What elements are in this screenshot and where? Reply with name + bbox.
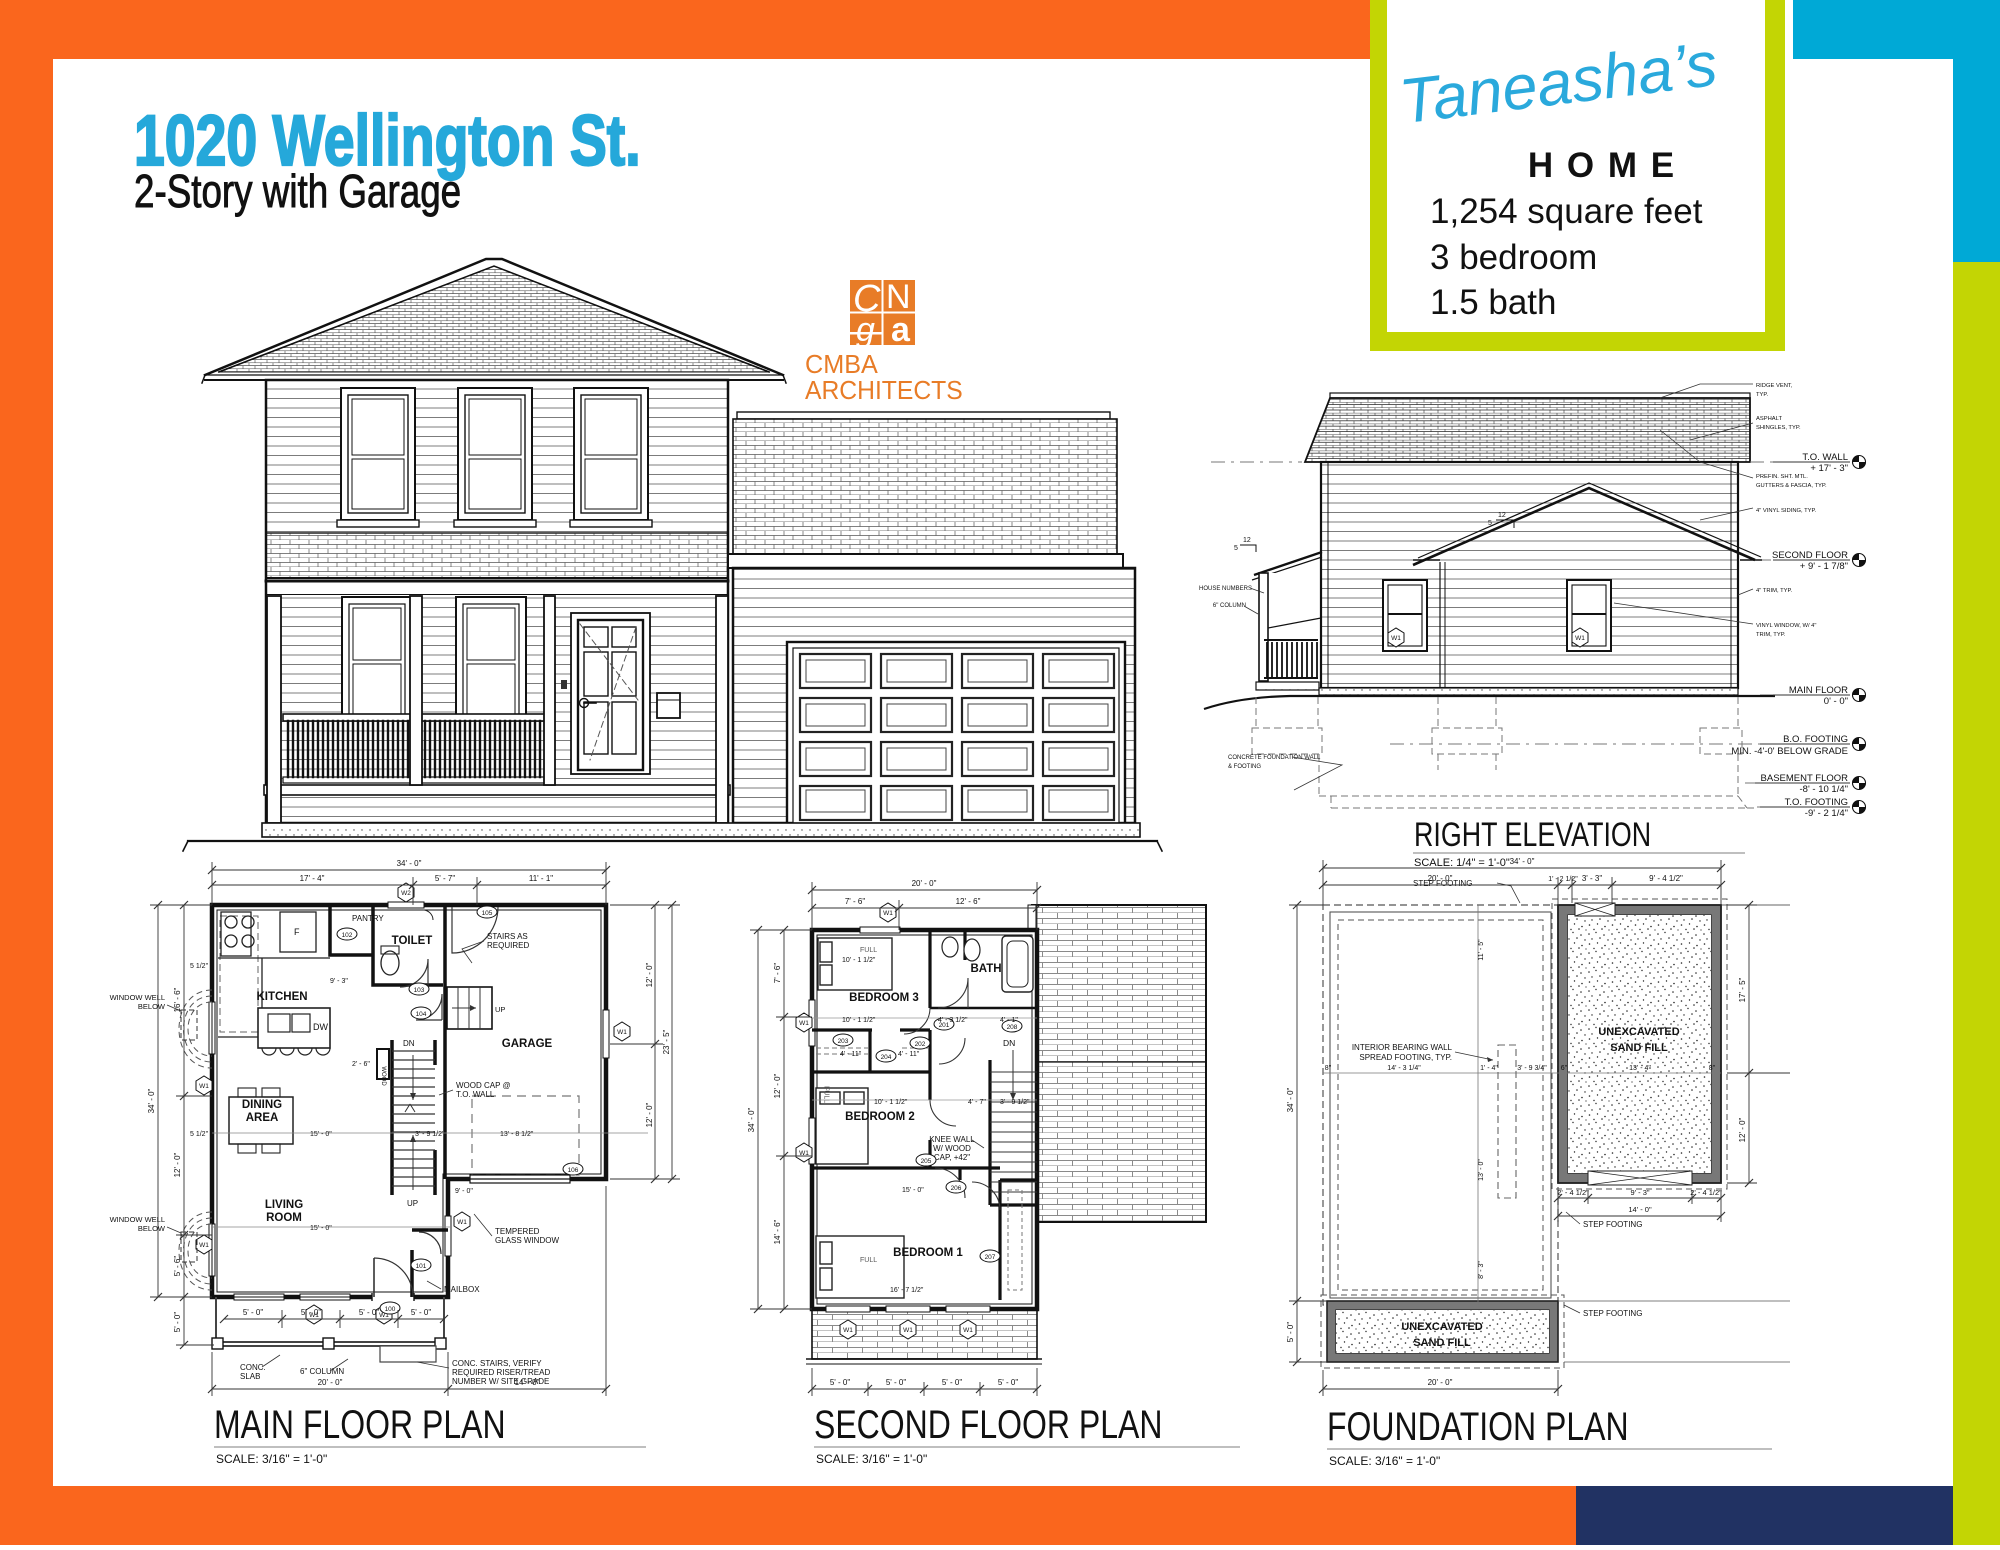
svg-text:SAND FILL: SAND FILL — [1610, 1042, 1668, 1054]
svg-text:5: 5 — [1488, 520, 1492, 527]
svg-text:23' - 5": 23' - 5" — [662, 1029, 671, 1054]
svg-text:BELOW: BELOW — [138, 1002, 166, 1011]
svg-text:W/ WOOD: W/ WOOD — [933, 1144, 971, 1153]
svg-text:TEMPERED: TEMPERED — [495, 1227, 540, 1236]
svg-text:34' - 0": 34' - 0" — [147, 1088, 156, 1113]
svg-text:1,254 square feet: 1,254 square feet — [1430, 192, 1703, 231]
svg-text:5' - 0": 5' - 0" — [1286, 1322, 1295, 1343]
svg-text:SLAB: SLAB — [240, 1372, 260, 1381]
svg-text:10' - 1 1/2": 10' - 1 1/2" — [842, 1017, 876, 1024]
svg-text:CMBA: CMBA — [805, 351, 879, 379]
svg-text:106: 106 — [568, 1167, 579, 1174]
svg-text:6" COLUMN: 6" COLUMN — [1213, 603, 1246, 609]
svg-text:20' - 0": 20' - 0" — [1428, 1378, 1453, 1387]
svg-text:101: 101 — [416, 1263, 427, 1270]
svg-text:207: 207 — [985, 1254, 996, 1261]
svg-text:2' - 4 1/2": 2' - 4 1/2" — [1557, 1188, 1589, 1197]
svg-text:12' - 0": 12' - 0" — [645, 1102, 654, 1127]
svg-text:FULL: FULL — [860, 947, 877, 954]
svg-text:W1: W1 — [199, 1242, 209, 1249]
svg-text:1.5 bath: 1.5 bath — [1430, 283, 1557, 322]
svg-text:13' - 8 1/2": 13' - 8 1/2" — [500, 1131, 534, 1138]
svg-text:8' - 3": 8' - 3" — [1478, 1261, 1485, 1279]
svg-text:FULL: FULL — [823, 1086, 830, 1103]
svg-text:13' - 4": 13' - 4" — [1629, 1065, 1651, 1072]
svg-text:8": 8" — [1325, 1065, 1332, 1072]
svg-text:1' - 2 1/2": 1' - 2 1/2" — [1548, 876, 1578, 883]
svg-text:2' - 6": 2' - 6" — [352, 1061, 370, 1068]
svg-text:WOOD: WOOD — [380, 1066, 386, 1086]
svg-text:RIDGE VENT,: RIDGE VENT, — [1756, 383, 1793, 389]
svg-text:3' - 9 3/4": 3' - 9 3/4" — [1517, 1065, 1547, 1072]
svg-text:105: 105 — [482, 910, 493, 917]
svg-text:5' - 7": 5' - 7" — [435, 874, 456, 883]
svg-text:UP: UP — [407, 1199, 418, 1208]
svg-text:g: g — [856, 311, 875, 349]
svg-text:MAIN FLOOR: MAIN FLOOR — [1789, 685, 1848, 696]
svg-text:5 1/2": 5 1/2" — [190, 1131, 209, 1138]
svg-text:20' - 0": 20' - 0" — [912, 879, 937, 888]
svg-text:DINING: DINING — [242, 1099, 282, 1111]
svg-text:W1: W1 — [843, 1327, 853, 1334]
svg-text:BELOW: BELOW — [138, 1224, 166, 1233]
svg-text:CONC. STAIRS, VERIFY: CONC. STAIRS, VERIFY — [452, 1359, 542, 1368]
svg-text:3' - 9 1/2": 3' - 9 1/2" — [1000, 1099, 1030, 1106]
svg-text:102: 102 — [342, 932, 353, 939]
svg-text:0' - 0": 0' - 0" — [1824, 696, 1848, 707]
svg-text:9' - 4 1/2": 9' - 4 1/2" — [1649, 874, 1683, 883]
svg-text:FOUNDATION PLAN: FOUNDATION PLAN — [1327, 1404, 1629, 1449]
svg-text:MIN. -4'-0' BELOW GRADE: MIN. -4'-0' BELOW GRADE — [1731, 746, 1848, 757]
svg-text:SAND FILL: SAND FILL — [1413, 1337, 1471, 1349]
svg-text:3 bedroom: 3 bedroom — [1430, 238, 1597, 277]
svg-text:20' - 0": 20' - 0" — [1428, 874, 1453, 883]
svg-text:4' - 11": 4' - 11" — [898, 1051, 920, 1058]
svg-text:15' - 0": 15' - 0" — [902, 1187, 924, 1194]
svg-text:H O M E: H O M E — [1528, 146, 1676, 185]
svg-text:HOUSE NUMBERS: HOUSE NUMBERS — [1199, 586, 1252, 592]
svg-text:104: 104 — [416, 1011, 427, 1018]
svg-text:+ 9' - 1 7/8": + 9' - 1 7/8" — [1800, 561, 1848, 572]
svg-text:34' - 0": 34' - 0" — [747, 1107, 756, 1132]
svg-text:T.O. WALL: T.O. WALL — [1802, 452, 1848, 463]
svg-text:REQUIRED: REQUIRED — [487, 941, 529, 950]
svg-text:SECOND FLOOR PLAN: SECOND FLOOR PLAN — [814, 1402, 1162, 1447]
svg-text:RIGHT ELEVATION: RIGHT ELEVATION — [1414, 816, 1651, 854]
svg-text:INTERIOR BEARING WALL: INTERIOR BEARING WALL — [1352, 1043, 1453, 1052]
svg-text:BASEMENT FLOOR: BASEMENT FLOOR — [1761, 773, 1849, 784]
svg-text:W1: W1 — [883, 910, 893, 917]
svg-text:2-Story with Garage: 2-Story with Garage — [134, 165, 461, 217]
svg-text:PREFIN. SHT. MTL.: PREFIN. SHT. MTL. — [1756, 474, 1808, 480]
svg-text:TOILET: TOILET — [392, 935, 433, 947]
svg-text:4' - 3 1/2": 4' - 3 1/2" — [938, 1017, 968, 1024]
svg-text:5' - 0": 5' - 0" — [411, 1308, 432, 1317]
svg-text:5' - 0": 5' - 0" — [830, 1378, 851, 1387]
svg-text:34' - 0": 34' - 0" — [397, 859, 422, 868]
svg-text:5' - 0": 5' - 0" — [359, 1308, 380, 1317]
svg-text:W1: W1 — [1391, 635, 1401, 642]
svg-text:SECOND FLOOR: SECOND FLOOR — [1772, 550, 1848, 561]
svg-text:BATH: BATH — [970, 963, 1001, 975]
svg-text:3' - 9 1/2": 3' - 9 1/2" — [415, 1131, 445, 1138]
svg-text:14' - 6": 14' - 6" — [773, 1219, 782, 1244]
svg-text:AREA: AREA — [246, 1112, 279, 1124]
svg-text:203: 203 — [838, 1038, 849, 1045]
svg-text:PANTRY: PANTRY — [352, 914, 384, 923]
svg-text:9' - 0": 9' - 0" — [455, 1188, 473, 1195]
svg-text:KITCHEN: KITCHEN — [256, 991, 307, 1003]
svg-text:SCALE: 3/16" = 1'-0": SCALE: 3/16" = 1'-0" — [1329, 1454, 1440, 1468]
svg-text:VINYL WINDOW, W/ 4": VINYL WINDOW, W/ 4" — [1756, 623, 1816, 629]
svg-text:SHINGLES, TYP.: SHINGLES, TYP. — [1756, 425, 1801, 431]
svg-text:TRIM, TYP.: TRIM, TYP. — [1756, 632, 1786, 638]
svg-text:12: 12 — [1243, 537, 1251, 544]
svg-text:14' - 3 1/4": 14' - 3 1/4" — [1387, 1065, 1421, 1072]
svg-text:103: 103 — [414, 987, 425, 994]
svg-text:16' - 6": 16' - 6" — [173, 987, 182, 1012]
svg-text:UNEXCAVATED: UNEXCAVATED — [1598, 1026, 1679, 1038]
svg-text:5' - 0": 5' - 0" — [173, 1312, 182, 1333]
svg-text:100: 100 — [385, 1306, 396, 1313]
svg-text:W1: W1 — [963, 1327, 973, 1334]
svg-text:5' - 6": 5' - 6" — [173, 1256, 182, 1277]
svg-text:DN: DN — [403, 1039, 415, 1048]
svg-text:STAIRS AS: STAIRS AS — [487, 932, 528, 941]
svg-text:W1: W1 — [903, 1327, 913, 1334]
svg-text:W1: W1 — [617, 1029, 627, 1036]
svg-text:B.O. FOOTING: B.O. FOOTING — [1783, 734, 1848, 745]
svg-text:208: 208 — [1007, 1024, 1018, 1031]
svg-text:WINDOW WELL: WINDOW WELL — [110, 993, 165, 1002]
svg-text:W1: W1 — [799, 1020, 809, 1027]
svg-text:F: F — [294, 927, 300, 937]
svg-text:W2: W2 — [401, 890, 411, 897]
svg-text:T.O. WALL: T.O. WALL — [456, 1090, 495, 1099]
svg-text:10' - 1 1/2": 10' - 1 1/2" — [874, 1099, 908, 1106]
svg-text:BEDROOM 3: BEDROOM 3 — [849, 992, 919, 1004]
svg-text:12' - 0": 12' - 0" — [173, 1152, 182, 1177]
svg-text:LIVING: LIVING — [265, 1199, 303, 1211]
svg-text:SCALE: 3/16" = 1'-0": SCALE: 3/16" = 1'-0" — [216, 1452, 327, 1466]
svg-text:BEDROOM 2: BEDROOM 2 — [845, 1111, 915, 1123]
svg-text:202: 202 — [915, 1041, 926, 1048]
svg-text:10' - 1 1/2": 10' - 1 1/2" — [842, 957, 876, 964]
svg-text:a: a — [891, 311, 911, 349]
svg-text:REQUIRED RISER/TREAD: REQUIRED RISER/TREAD — [452, 1368, 550, 1377]
svg-text:ARCHITECTS: ARCHITECTS — [805, 376, 963, 405]
svg-text:& FOOTING: & FOOTING — [1228, 764, 1261, 770]
svg-text:12: 12 — [1498, 512, 1506, 519]
svg-text:204: 204 — [881, 1054, 892, 1061]
svg-text:5' - 0": 5' - 0" — [301, 1308, 322, 1317]
svg-text:17' - 4": 17' - 4" — [300, 874, 325, 883]
svg-text:CAP, +42": CAP, +42" — [934, 1153, 970, 1162]
svg-text:17' - 5": 17' - 5" — [1738, 977, 1747, 1002]
svg-text:12' - 0": 12' - 0" — [1738, 1117, 1747, 1142]
svg-text:GLASS WINDOW: GLASS WINDOW — [495, 1236, 559, 1245]
svg-text:34' - 0": 34' - 0" — [1286, 1087, 1295, 1112]
svg-text:1' - 4": 1' - 4" — [1480, 1065, 1498, 1072]
svg-text:15' - 0": 15' - 0" — [310, 1225, 332, 1232]
svg-text:SCALE: 3/16" = 1'-0": SCALE: 3/16" = 1'-0" — [816, 1452, 927, 1466]
svg-text:5 1/2": 5 1/2" — [190, 963, 209, 970]
svg-text:DW: DW — [313, 1022, 328, 1032]
svg-text:-8' - 10 1/4": -8' - 10 1/4" — [1800, 784, 1849, 795]
svg-text:5' - 0": 5' - 0" — [886, 1378, 907, 1387]
svg-text:ASPHALT: ASPHALT — [1756, 416, 1782, 422]
svg-text:+ 17' - 3": + 17' - 3" — [1810, 463, 1848, 474]
svg-text:4' - 11": 4' - 11" — [840, 1051, 862, 1058]
svg-text:WINDOW WELL: WINDOW WELL — [110, 1215, 165, 1224]
svg-text:FULL: FULL — [860, 1257, 877, 1264]
svg-text:15' - 0": 15' - 0" — [310, 1131, 332, 1138]
svg-text:SPREAD FOOTING, TYP.: SPREAD FOOTING, TYP. — [1359, 1053, 1452, 1062]
svg-text:CONCRETE FOUNDATION WALL: CONCRETE FOUNDATION WALL — [1228, 755, 1321, 761]
svg-text:16' - 7 1/2": 16' - 7 1/2" — [890, 1287, 924, 1294]
svg-text:W1: W1 — [1575, 635, 1585, 642]
svg-text:11' - 5": 11' - 5" — [1478, 939, 1485, 961]
svg-text:CONC.: CONC. — [240, 1363, 266, 1372]
svg-text:T.O. FOOTING: T.O. FOOTING — [1785, 797, 1848, 808]
svg-text:34' - 0": 34' - 0" — [1510, 857, 1535, 866]
svg-text:SCALE: 1/4" = 1'-0": SCALE: 1/4" = 1'-0" — [1414, 857, 1510, 869]
svg-text:14' - 0": 14' - 0" — [1628, 1205, 1652, 1214]
svg-text:20' - 0": 20' - 0" — [318, 1378, 343, 1387]
svg-text:5' - 0": 5' - 0" — [942, 1378, 963, 1387]
svg-text:3' - 3": 3' - 3" — [1582, 874, 1603, 883]
svg-text:GARAGE: GARAGE — [502, 1038, 553, 1050]
svg-text:5: 5 — [1234, 545, 1238, 552]
svg-text:4' - 1": 4' - 1" — [1000, 1017, 1018, 1024]
svg-text:STEP FOOTING: STEP FOOTING — [1583, 1309, 1642, 1318]
svg-text:MAILBOX: MAILBOX — [444, 1285, 480, 1294]
svg-text:6": 6" — [1561, 1065, 1568, 1072]
svg-text:WOOD CAP @: WOOD CAP @ — [456, 1081, 511, 1090]
svg-text:ROOM: ROOM — [266, 1212, 302, 1224]
svg-text:GUTTERS & FASCIA, TYP.: GUTTERS & FASCIA, TYP. — [1756, 483, 1827, 489]
svg-text:-9' - 2 1/4": -9' - 2 1/4" — [1805, 808, 1848, 819]
svg-text:9' - 3": 9' - 3" — [1630, 1188, 1649, 1197]
svg-text:W1: W1 — [457, 1219, 467, 1226]
svg-text:5' - 0": 5' - 0" — [998, 1378, 1019, 1387]
svg-text:2' - 4 1/2": 2' - 4 1/2" — [1690, 1188, 1722, 1197]
svg-text:BEDROOM 1: BEDROOM 1 — [893, 1247, 963, 1259]
svg-text:14' - 0": 14' - 0" — [515, 1378, 540, 1387]
svg-text:DN: DN — [1003, 1038, 1015, 1048]
svg-text:206: 206 — [951, 1185, 962, 1192]
svg-text:6" COLUMN: 6" COLUMN — [300, 1367, 344, 1376]
svg-text:MAIN FLOOR PLAN: MAIN FLOOR PLAN — [214, 1402, 506, 1447]
svg-text:5' - 0": 5' - 0" — [243, 1308, 264, 1317]
svg-text:9' - 3": 9' - 3" — [330, 978, 348, 985]
svg-text:8": 8" — [1709, 1065, 1716, 1072]
svg-text:7' - 6": 7' - 6" — [773, 963, 782, 984]
svg-text:KNEE WALL: KNEE WALL — [929, 1135, 975, 1144]
svg-text:UNEXCAVATED: UNEXCAVATED — [1401, 1321, 1482, 1333]
svg-text:W1: W1 — [199, 1083, 209, 1090]
svg-text:4" TRIM, TYP.: 4" TRIM, TYP. — [1756, 588, 1793, 594]
svg-text:12' - 6": 12' - 6" — [956, 897, 981, 906]
svg-text:7' - 6": 7' - 6" — [845, 897, 866, 906]
svg-text:13' - 0": 13' - 0" — [1478, 1159, 1485, 1181]
svg-text:12' - 0": 12' - 0" — [645, 962, 654, 987]
svg-text:11' - 1": 11' - 1" — [529, 874, 553, 883]
svg-text:4" VINYL SIDING, TYP.: 4" VINYL SIDING, TYP. — [1756, 508, 1817, 514]
svg-text:TYP.: TYP. — [1756, 392, 1769, 398]
svg-text:4' - 7": 4' - 7" — [968, 1099, 986, 1106]
svg-text:205: 205 — [921, 1158, 932, 1165]
svg-text:12' - 0": 12' - 0" — [773, 1073, 782, 1098]
svg-text:STEP FOOTING: STEP FOOTING — [1583, 1220, 1642, 1229]
svg-text:UP: UP — [495, 1005, 505, 1014]
